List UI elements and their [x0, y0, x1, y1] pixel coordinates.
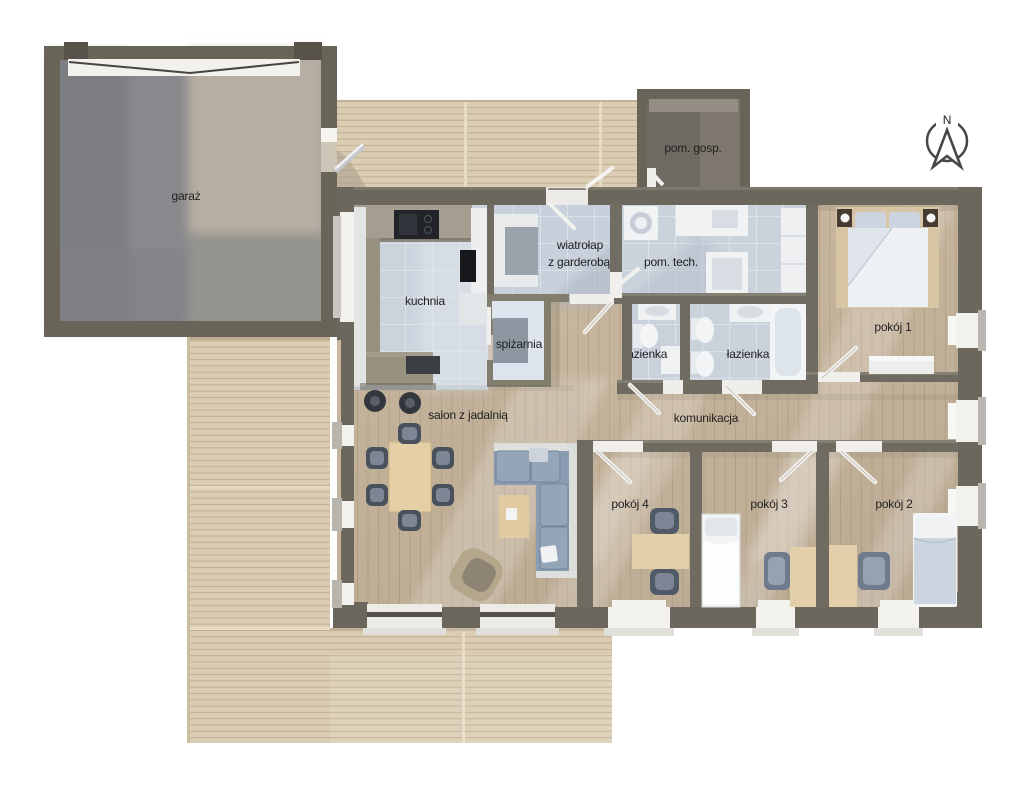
- svg-text:łazienka: łazienka: [727, 347, 770, 361]
- svg-text:salon z jadalnią: salon z jadalnią: [428, 408, 508, 422]
- svg-text:wiatrołap: wiatrołap: [556, 238, 604, 252]
- svg-text:N: N: [943, 113, 951, 127]
- svg-text:komunikacja: komunikacja: [674, 411, 739, 425]
- svg-text:garaż: garaż: [171, 189, 200, 203]
- svg-text:pokój 1: pokój 1: [874, 320, 912, 334]
- svg-text:pom. gosp.: pom. gosp.: [664, 141, 721, 155]
- svg-text:pokój 2: pokój 2: [875, 497, 913, 511]
- svg-text:z garderobą: z garderobą: [548, 255, 610, 269]
- svg-text:pokój 3: pokój 3: [750, 497, 788, 511]
- svg-text:pokój 4: pokój 4: [611, 497, 649, 511]
- svg-text:spiżarnia: spiżarnia: [496, 337, 543, 351]
- svg-text:kuchnia: kuchnia: [405, 294, 445, 308]
- svg-text:pom. tech.: pom. tech.: [644, 255, 698, 269]
